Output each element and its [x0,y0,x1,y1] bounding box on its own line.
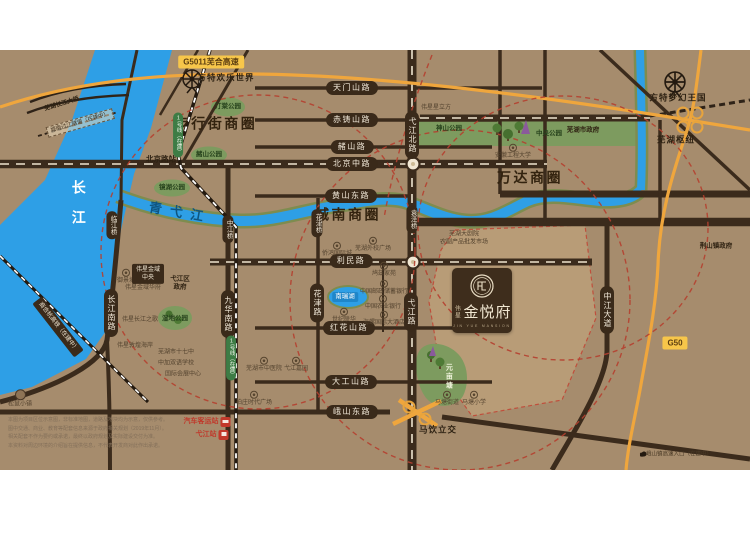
poi-postal-bank: 中国邮政储蓄银行 [360,280,408,297]
bridge-badge-linjiang: 临江桥 [106,211,117,239]
label-chengnan-tunnel-label: 城南过江隧道（在建中） [46,108,115,137]
poi-sino-canada-school: 中加双语学校 [158,360,194,368]
road-badge-huajin: 花津路 [310,284,324,323]
poi-yijiang-government: 弋江区 政府 [170,274,190,291]
poi-grand-theatre: 芜湖大剧院 农副产品批发市场 [440,232,488,247]
road-badge-zhongjiang: 中江大道 [600,286,614,334]
road-badge-yijiang: 弋江路 [404,293,418,332]
poi-agri-bank-label: 中国农业银行 [365,304,401,312]
label-mayin-interchange-label: 马饮立交 [419,425,457,436]
label-beijinglu-station-label: 北京路站 [146,154,176,163]
poi-wuhu-government-label: 芜湖市政府 [567,126,600,134]
label-wuhu-hub-label: 芜湖枢纽 [657,135,695,146]
poi-yujingcheng-label: 御景城 [117,278,135,286]
road-badge-honghuashan: 红花山路 [323,321,375,335]
poi-agri-bank: 中国农业银行 [365,295,401,312]
bridge-badge-zhongjiang: 中江桥 [222,215,233,243]
jinyuefu-seal-icon [469,273,495,299]
poi-baizhuang-plaza-label: 柏庄时代广场 [236,400,272,408]
circle-icon [509,144,517,152]
poi-anhui-polytechnic-label: 安徽工程大学 [495,153,531,161]
road-badge-limin-label: 利民路 [330,254,373,268]
label-fantawild-dreamkingdom-label: 方特梦幻王国 [649,93,706,104]
poi-shiji-lianhua: 世纪联华 [332,308,356,325]
poi-convention-center: 国际会展中心 [165,371,201,379]
road-badge-huajin-label: 花津路 [310,284,324,323]
label-nanruihu-lake-label: 南瑞湖 [332,292,358,302]
disclaimer-line: 相关配套不作为要约或承诺，最终以政府规划及实际建设交付为准。 [8,433,186,442]
circle-icon [443,391,451,399]
circle-icon [260,357,268,365]
location-map: 步行街商圈城南商圈万达商圈天门山路赤铸山路赭山路北京中路黄山东路利民路红花山路大… [0,50,750,470]
label-qingyijiang-river-label: 青弋江 [148,200,213,227]
poi-tcm-hospital-label: 芜湖市中医院 [246,366,282,374]
district-pedestrian-street: 步行街商圈 [175,115,258,133]
circle-icon [470,391,478,399]
road-badge-yijiang-label: 弋江路 [404,293,418,332]
district-chengnan-label: 城南商圈 [315,206,381,224]
town-icon [14,389,25,400]
road-badge-chizhushan: 赤铸山路 [326,113,378,127]
poi-sino-canada-school-label: 中加双语学校 [158,360,194,368]
circle-icon [380,311,388,319]
highway-badge-g50-label: G50 [662,337,687,350]
district-pedestrian-street-label: 步行街商圈 [175,115,258,133]
road-badge-eshandong: 峨山东路 [326,405,378,419]
road-badge-jiuhuanan-label: 九华南路 [221,290,235,338]
label-fantawild-dreamkingdom: 方特梦幻王国 [649,93,706,104]
park-shidi: 湿地公园 [162,315,188,323]
metro-badge-line1-north: 1号线（在建） [173,113,183,158]
label-changjiang-river: 长江 [69,176,87,240]
disclaimer-block: 本图为项目区位示意图，非标准地图，道路及地块均为示意，仅供参考。 图中交通、商业… [8,416,186,450]
poi-yijiang-government-label: 弋江区 政府 [170,275,190,291]
label-shanghehang-railway-label: 商合杭高铁（在建中） [32,296,83,357]
road-badge-huangshandong: 黄山东路 [325,189,377,203]
disclaimer-line: 本图为项目区位示意图，非标准地图，道路及地块均为示意，仅供参考。 [8,416,186,425]
poi-waixiao-plaza: 芜湖外校广场 [355,237,391,254]
park-tingtang: 汀棠公园 [215,103,241,111]
road-badge-yijiangbei: 弋江北路 [405,111,419,159]
bridge-badge-yuanze-label: 袁泽桥 [406,205,417,233]
road-badge-huangshandong-label: 黄山东路 [325,189,377,203]
park-yuanmutang: 元亩塘 [444,364,453,391]
label-wuhu-hub: 芜湖枢纽 [657,135,695,146]
bridge-badge-yuanze: 袁泽桥 [406,205,417,233]
poi-matang-jiedao-label: 马塘街道 [435,400,459,408]
district-wanda-label: 万达商圈 [497,169,563,187]
park-zheshan: 赭山公园 [196,151,222,159]
poi-weixing-changjiangzhige: 伟星长江之歌 [122,316,158,325]
poi-no17-middle-school-label: 芜湖市十七中 [158,349,194,357]
poi-weixing-dunhuanghaian-label: 伟星敦煌海岸 [117,343,153,351]
dot-icon [640,453,644,457]
district-wanda: 万达商圈 [497,169,563,187]
logo-brand: 伟星 [452,305,461,319]
park-zhongyang-label: 中央公园 [536,130,562,138]
poi-jingshan-government: 荆山镇政府 [700,241,733,250]
poi-weixing-xinglifang: 伟星星立方 [421,104,451,113]
label-fantawild-joyland-label: 方特欢乐世界 [197,73,254,84]
poi-matang-school-label: 马塘小学 [462,400,486,408]
park-zhongyang: 中央公园 [536,130,562,138]
poi-conch-hotel: 海螺国际大酒店 [363,311,405,328]
road-badge-tianmenshan: 天门山路 [326,81,378,95]
highway-badge-g5011-label: G5011芜合高速 [178,56,244,69]
project-logo-card: 伟星 金悦府 JIN YUE MANSION [452,268,512,333]
label-beijinglu-station: 北京路站 [146,154,176,163]
road-badge-limin: 利民路 [330,254,373,268]
district-chengnan: 城南商圈 [315,206,381,224]
poi-convention-center-label: 国际会展中心 [165,371,201,379]
circle-icon [292,357,300,365]
road-badge-jiuhuanan: 九华南路 [221,290,235,338]
poi-anhui-polytechnic: 安徽工程大学 [495,144,531,161]
road-badge-yijiangbei-label: 弋江北路 [405,111,419,159]
poi-qiaohong-international-label: 侨鸿国际城 [322,251,352,259]
label-changjiang-river-label: 长江 [69,176,87,240]
poi-conch-hotel-label: 海螺国际大酒店 [363,320,405,328]
poi-weixing-jinyu-center: 伟星金域 中央 [132,264,164,284]
park-jinghu-label: 镜湖公园 [159,184,185,192]
label-eshan-highway-entry: 峨山镇高速入口（在建中） [640,452,712,459]
road-badge-zheshan: 赭山路 [331,140,374,154]
bridge-badge-linjiang-label: 临江桥 [106,211,117,239]
road-badge-zheshan-label: 赭山路 [331,140,374,154]
circle-icon [379,295,387,303]
poi-matang-jiedao: 马塘街道 [435,391,459,408]
disclaimer-line: 本资料对周边环境的介绍旨在提供信息，不代表开发商对此作出承诺。 [8,442,186,451]
label-mayin-interchange: 马饮立交 [419,425,457,436]
logo-subtitle: JIN YUE MANSION [453,324,511,328]
poi-matang-school: 马塘小学 [462,391,486,408]
map-labels-layer: 步行街商圈城南商圈万达商圈天门山路赤铸山路赭山路北京中路黄山东路利民路红花山路大… [0,50,750,470]
poi-yijiang-jiayuan-label: 弋江嘉园 [284,366,308,374]
bridge-badge-zhongjiang-label: 中江桥 [222,215,233,243]
poi-songshu-town: 松鼠小镇 [8,389,32,409]
circle-icon [380,280,388,288]
disclaimer-line: 图中交通、商业、教育等配套信息来源于政府相关规划（2019年11月）。 [8,425,186,434]
poi-weixing-changjiangzhige-label: 伟星长江之歌 [122,317,158,325]
label-chengnan-tunnel: 城南过江隧道（在建中） [46,108,115,137]
bridge-badge-huajin: 花津桥 [311,209,322,237]
road-badge-changjiangnan: 长江南路 [104,289,118,337]
poi-weixing-jinyu-huafu: 伟星金域华府 [125,284,161,293]
poi-shiji-lianhua-label: 世纪联华 [332,317,356,325]
highway-badge-g5011: G5011芜合高速 [178,56,244,69]
metro-badge-line1-south-label: 1号线（在建） [226,336,236,381]
road-badge-eshandong-label: 峨山东路 [326,405,378,419]
poi-bus-terminal: 汽车客运站 [184,417,231,427]
road-badge-dagongshan: 大工山路 [325,375,377,389]
location-map-page: 步行街商圈城南商圈万达商圈天门山路赤铸山路赭山路北京中路黄山东路利民路红花山路大… [0,0,750,560]
park-shenshan-label: 神山公园 [436,125,462,133]
poi-songshu-town-label: 松鼠小镇 [8,401,32,409]
circle-icon [122,269,130,277]
poi-weixing-jinyu-huafu-label: 伟星金域华府 [125,285,161,293]
road-badge-tianmenshan-label: 天门山路 [326,81,378,95]
label-eshan-highway-entry-label: 峨山镇高速入口（在建中） [646,452,712,459]
poi-baizhuang-plaza: 柏庄时代广场 [236,391,272,408]
park-jinghu: 镜湖公园 [159,184,185,192]
poi-weixing-dunhuanghaian: 伟星敦煌海岸 [117,342,153,351]
road-badge-zhongjiang-label: 中江大道 [600,286,614,334]
park-yuanmutang-label: 元亩塘 [444,364,453,391]
poi-tcm-hospital: 芜湖市中医院 [246,357,282,374]
poi-bus-terminal-label: 汽车客运站 [184,418,219,427]
label-changjiang-bridge: 芜湖长江大桥 [44,96,81,114]
road-badge-chizhushan-label: 赤铸山路 [326,113,378,127]
circle-icon [380,262,388,270]
poi-no17-middle-school: 芜湖市十七中 [158,349,194,357]
label-shanghehang-railway: 商合杭高铁（在建中） [32,296,83,357]
bridge-badge-huajin-label: 花津桥 [311,209,322,237]
poi-weixing-xinglifang-label: 伟星星立方 [421,105,451,113]
metro-badge-line1-south: 1号线（在建） [226,336,236,381]
circle-icon [250,391,258,399]
poi-jingshan-government-label: 荆山镇政府 [700,242,733,250]
metro-badge-line1-north-label: 1号线（在建） [173,113,183,158]
circle-icon [333,242,341,250]
poi-weixing-jinyu-center-label: 伟星金域 中央 [132,264,164,284]
park-zheshan-label: 赭山公园 [196,151,222,159]
poi-jiuzi-jiayuan-label: 鸠兹家苑 [372,271,396,279]
poi-yijiang-rail-station-label: 弋江站 [196,431,217,440]
poi-postal-bank-label: 中国邮政储蓄银行 [360,289,408,297]
road-badge-beijingzhong-label: 北京中路 [326,157,378,171]
bus-icon [221,417,231,427]
label-qingyijiang-river: 青弋江 [148,200,213,227]
train-icon [219,430,229,440]
road-badge-dagongshan-label: 大工山路 [325,375,377,389]
park-shenshan: 神山公园 [436,125,462,133]
poi-jiuzi-jiayuan: 鸠兹家苑 [372,262,396,279]
poi-yijiang-rail-station: 弋江站 [196,430,229,440]
label-fantawild-joyland: 方特欢乐世界 [197,73,254,84]
poi-yujingcheng: 御景城 [117,269,135,286]
road-badge-beijingzhong: 北京中路 [326,157,378,171]
circle-icon [369,237,377,245]
road-badge-honghuashan-label: 红花山路 [323,321,375,335]
poi-qiaohong-international: 侨鸿国际城 [322,242,352,259]
circle-icon [340,308,348,316]
poi-yijiang-jiayuan: 弋江嘉园 [284,357,308,374]
park-tingtang-label: 汀棠公园 [215,103,241,111]
park-shidi-label: 湿地公园 [162,315,188,323]
logo-name: 金悦府 [463,301,511,322]
road-badge-changjiangnan-label: 长江南路 [104,289,118,337]
label-changjiang-bridge-label: 芜湖长江大桥 [44,96,81,114]
poi-waixiao-plaza-label: 芜湖外校广场 [355,246,391,254]
label-nanruihu-lake: 南瑞湖 [332,292,358,302]
highway-badge-g50: G50 [662,337,687,350]
poi-wuhu-government: 芜湖市政府 [567,125,600,134]
poi-grand-theatre-label: 芜湖大剧院 农副产品批发市场 [440,232,488,247]
